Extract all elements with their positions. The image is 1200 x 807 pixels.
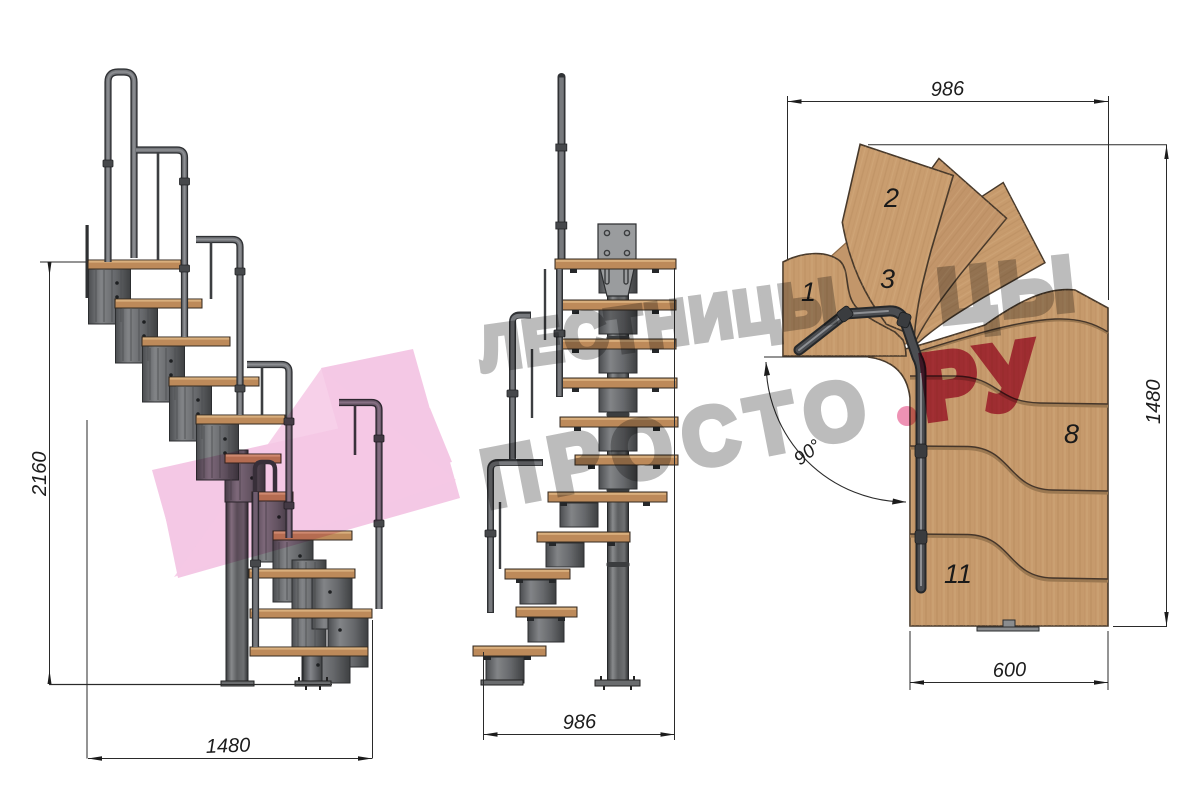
svg-text:1480: 1480 — [205, 734, 250, 758]
svg-text:11: 11 — [944, 559, 972, 589]
svg-text:2: 2 — [883, 183, 899, 213]
svg-text:986: 986 — [562, 711, 597, 734]
svg-text:8: 8 — [1064, 419, 1079, 449]
svg-text:986: 986 — [930, 78, 965, 101]
svg-text:2160: 2160 — [29, 452, 51, 498]
svg-text:600: 600 — [992, 659, 1026, 682]
svg-text:3: 3 — [880, 264, 895, 294]
svg-text:1480: 1480 — [1143, 380, 1165, 425]
svg-text:РУ: РУ — [915, 322, 1048, 438]
